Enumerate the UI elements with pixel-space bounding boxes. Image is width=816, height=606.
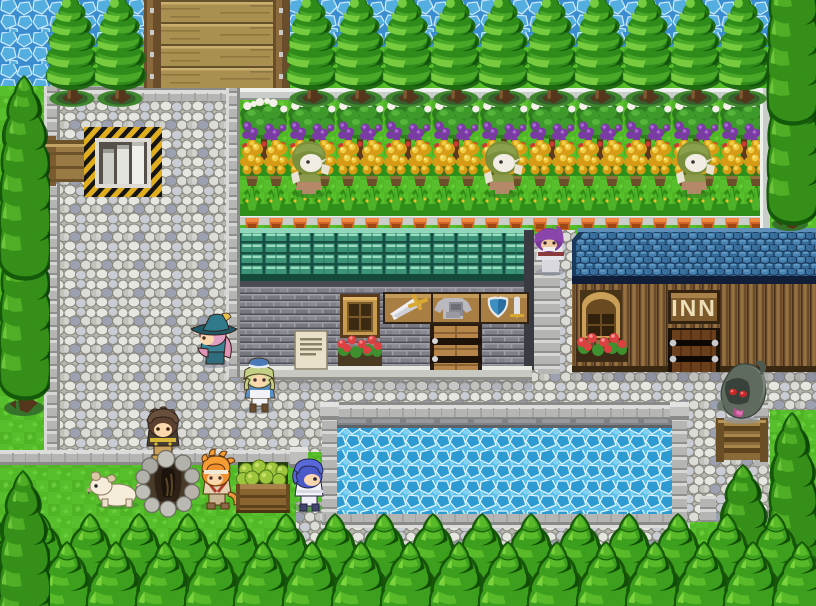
svg-text:INN: INN: [671, 295, 717, 321]
